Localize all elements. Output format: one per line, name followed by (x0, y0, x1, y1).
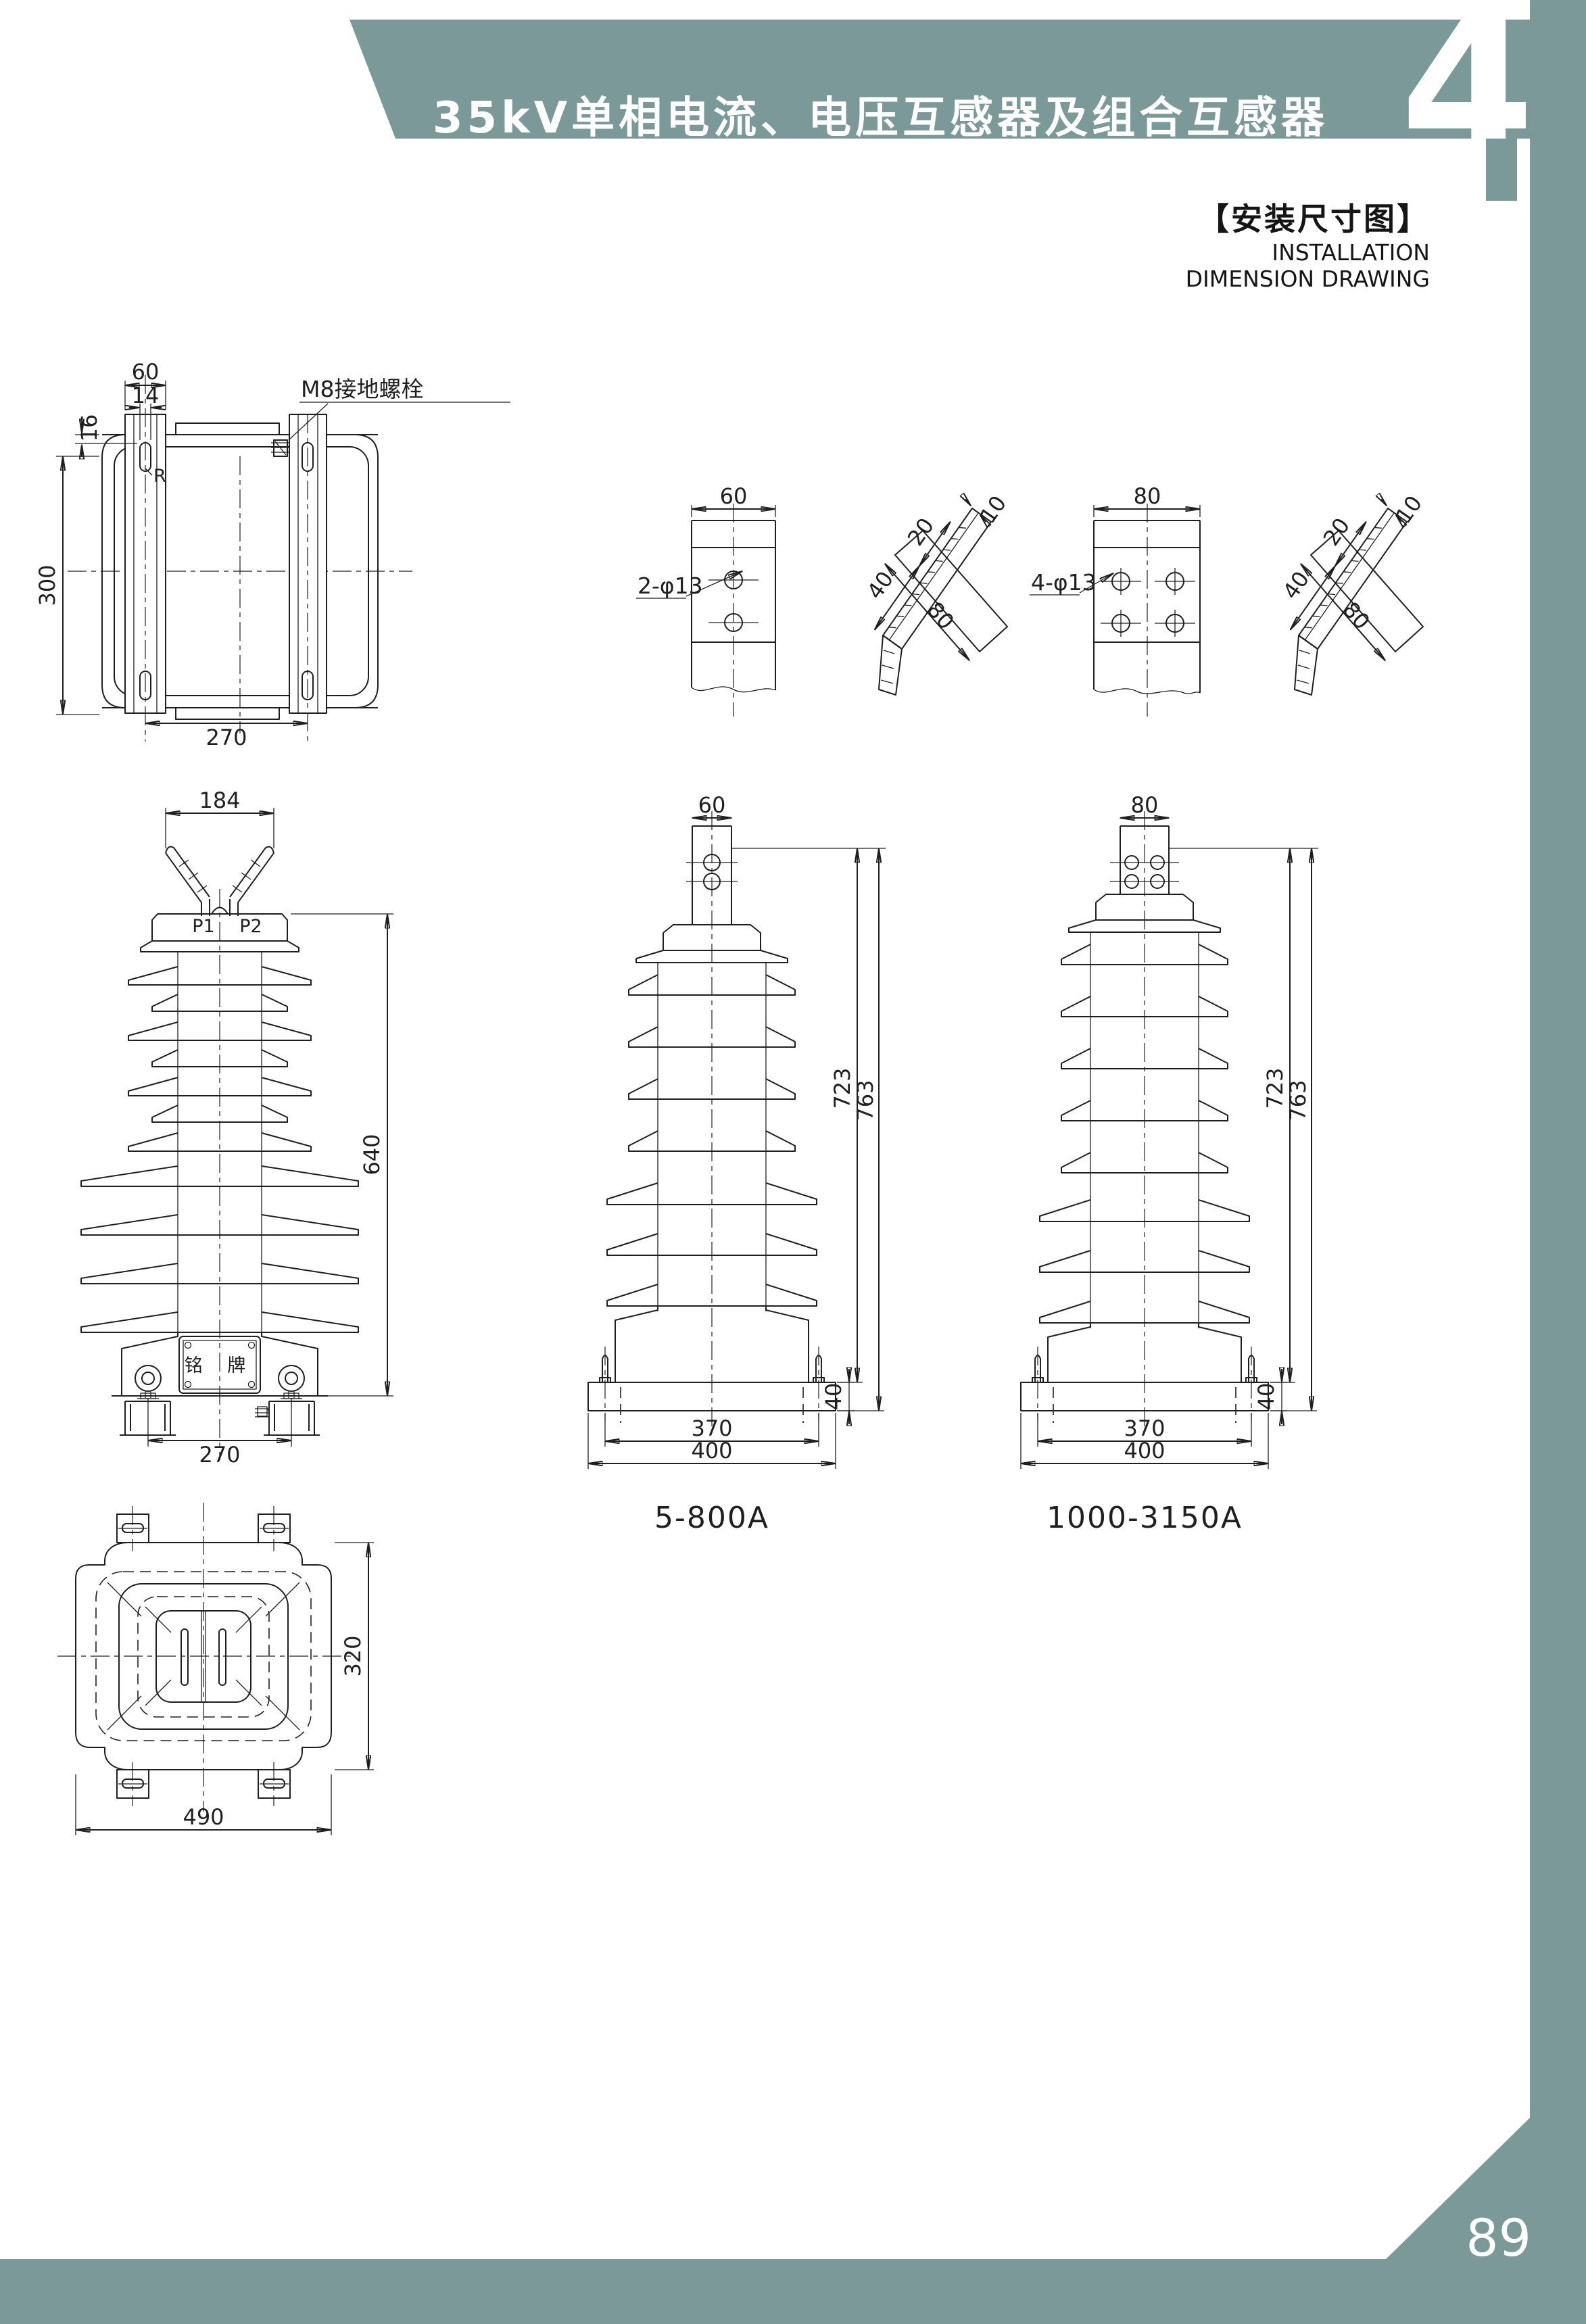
dim-label-t5-60: 60 (698, 792, 726, 818)
dim-723-763-h: 723 763 (1262, 848, 1317, 1411)
dim-40-base-h: 40 (1253, 1369, 1287, 1424)
holes-label-4: 4-φ13 (1031, 569, 1097, 596)
dim-label-t10-80: 80 (1131, 792, 1159, 818)
plate-2hole-outline (692, 504, 775, 717)
dim-184: 184 (166, 788, 274, 848)
t10-blade (1110, 826, 1318, 894)
drawing-terminal-side-small: 40 20 10 80 (842, 466, 1011, 750)
drawing-transformer-front: 184 P1 P2 铭 牌 (64, 788, 460, 1474)
dim-label-490: 490 (183, 1804, 224, 1830)
bottom-accent-band (0, 2259, 1586, 2324)
plate-4hole-outline (1094, 504, 1200, 717)
dim-label-t5-723: 723 (830, 1067, 855, 1109)
radius-label: R (153, 466, 166, 487)
dim-label-c10: 10 (975, 491, 1011, 528)
drawing-transformer-1000-3150a: 80 40 (1007, 798, 1440, 1605)
dim-270: 270 (145, 723, 308, 750)
holes-label-2: 2-φ13 (638, 573, 703, 599)
side-small-dims: 40 20 10 80 (862, 491, 1011, 660)
dim-label-270: 270 (206, 725, 247, 750)
dim-label-t10-400: 400 (1124, 1438, 1165, 1463)
dim-label-16: 16 (76, 414, 102, 442)
terminal-p1-label: P1 (192, 916, 214, 937)
terminal-p2-label: P2 (239, 916, 262, 937)
page-title: 35kV单相电流、电压互感器及组合互感器 (433, 83, 1328, 145)
ground-bolt-label: M8接地螺栓 (301, 376, 423, 402)
right-accent-band (1530, 0, 1586, 2324)
base-mounting-channels (125, 375, 327, 742)
side-large-dims: 40 20 10 80 (1278, 491, 1427, 660)
dim-270-front: 270 (148, 1441, 291, 1468)
dim-label-270-front: 270 (199, 1442, 240, 1468)
drawing-terminal-plate-4hole: 80 4-φ13 (1011, 483, 1262, 720)
header-band: 35kV单相电流、电压互感器及组合互感器 4 (0, 20, 1586, 139)
topview-nested (57, 1503, 352, 1812)
dim-label-300: 300 (34, 564, 60, 606)
dim-label-plate4-80: 80 (1134, 483, 1161, 509)
ground-bolt-symbol (271, 440, 290, 456)
dim-label-t5-40: 40 (821, 1383, 846, 1411)
dim-label-t10-723: 723 (1262, 1067, 1288, 1109)
chapter-number-stem (1486, 139, 1517, 201)
section-title-en-2: DIMENSION DRAWING (1186, 266, 1430, 292)
dim-370-400-h: 370 400 (1021, 1413, 1268, 1469)
dim-label-t10-763: 763 (1285, 1080, 1311, 1121)
page-number: 89 (1406, 2208, 1531, 2268)
dim-320: 320 (335, 1543, 374, 1770)
dim-label-t5-400: 400 (691, 1438, 732, 1463)
dim-label-e80: 80 (1338, 597, 1375, 635)
drawing-terminal-plate-2hole: 60 2-φ13 (632, 483, 843, 720)
dim-80-blade: 80 (1120, 792, 1169, 818)
section-title-zh: 【安装尺寸图】 (1186, 195, 1430, 239)
range-label-5-800a: 5-800A (654, 1501, 769, 1535)
drawing-base-front-view: 60 14 16 300 270 M8接地螺栓 R (37, 355, 487, 747)
dim-40-base-g: 40 (821, 1369, 855, 1424)
range-label-1000-3150a: 1000-3150A (1047, 1501, 1243, 1535)
dim-label-184: 184 (199, 788, 240, 813)
dim-60-blade: 60 (692, 792, 731, 818)
drawing-top-view: 320 490 (51, 1497, 585, 1859)
drawing-transformer-5-800a: 60 40 (575, 798, 1007, 1605)
drawing-terminal-side-large: 40 20 10 80 (1257, 466, 1426, 750)
dim-640: 640 (291, 914, 393, 1396)
dim-label-14: 14 (132, 383, 160, 408)
catalog-page: 35kV单相电流、电压互感器及组合互感器 4 89 【安装尺寸图】 INSTAL… (0, 0, 1586, 2324)
dim-label-plate2-60: 60 (720, 483, 748, 509)
dim-label-c80: 80 (922, 597, 959, 635)
dim-label-e10: 10 (1391, 491, 1427, 528)
dim-label-60: 60 (132, 359, 160, 385)
dim-723-763-g: 723 763 (830, 848, 884, 1411)
section-title: 【安装尺寸图】 INSTALLATION DIMENSION DRAWING (1186, 195, 1430, 292)
dim-300: 300 (34, 456, 99, 715)
t5-blade (686, 826, 886, 925)
dim-label-640: 640 (359, 1134, 385, 1175)
dim-370-400-g: 370 400 (588, 1413, 836, 1469)
holes-callout-4: 4-φ13 (1030, 569, 1113, 596)
dim-label-320: 320 (340, 1635, 366, 1676)
section-title-en-1: INSTALLATION (1186, 239, 1430, 266)
nameplate-label: 铭 牌 (185, 1355, 256, 1376)
dim-label-t10-40: 40 (1253, 1383, 1279, 1411)
dim-label-t5-763: 763 (852, 1080, 878, 1121)
